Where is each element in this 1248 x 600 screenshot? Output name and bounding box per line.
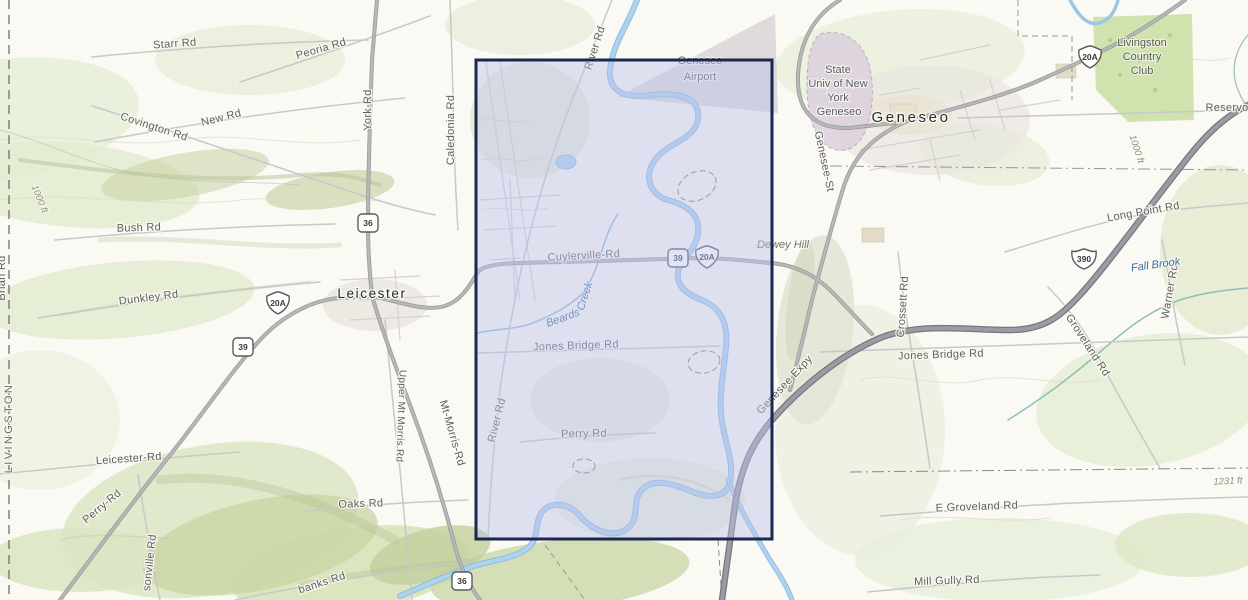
shield-text: 36 (363, 218, 373, 228)
shield-text: 20A (1082, 52, 1098, 62)
place-label-leicester: Leicester (337, 286, 406, 301)
road-label-york-rd: York-Rd (362, 89, 374, 130)
shield-text: 390 (1077, 254, 1091, 264)
road-label-reservoir-rd: Reservo (1205, 102, 1248, 114)
shield-text: 39 (238, 342, 248, 352)
shield-text: 36 (457, 576, 467, 586)
ny-39-shield-west: 39 (233, 338, 253, 356)
place-label-geneseo: Geneseo (871, 109, 950, 126)
area-label-university-line2: Univ of New (808, 78, 867, 90)
map-viewport[interactable]: Starr Rd Peoria Rd New Rd Covington Rd Y… (0, 0, 1248, 600)
road-label-caledonia-rd: Caledonia Rd (445, 95, 457, 165)
ny-36-shield-south: 36 (452, 572, 472, 590)
road-label-bush-rd: Bush Rd (117, 221, 162, 235)
ny-36-shield-north: 36 (358, 214, 378, 232)
area-label-country-club-line2: Country (1123, 51, 1162, 63)
area-label-university-line1: State (825, 64, 851, 76)
elevation-label-1231ft: 1231 ft (1213, 475, 1243, 488)
road-label-oaks-rd: Oaks Rd (338, 497, 383, 511)
area-label-university-line3: York (827, 92, 849, 104)
area-label-university-line4: Geneseo (817, 106, 862, 118)
road-label-brian-rd: Brian Rd (0, 255, 8, 300)
place-label-livingston-county: LIVINGSTON (3, 383, 15, 473)
area-label-country-club-line3: Club (1131, 65, 1154, 77)
map-canvas[interactable]: Starr Rd Peoria Rd New Rd Covington Rd Y… (0, 0, 1248, 600)
area-label-country-club-line1: Livingston (1117, 37, 1167, 49)
road-label-mill-gully-rd: Mill Gully Rd (914, 574, 980, 588)
building-footprint (862, 228, 884, 242)
selection-rectangle[interactable] (476, 60, 772, 539)
shield-text: 20A (270, 298, 286, 308)
